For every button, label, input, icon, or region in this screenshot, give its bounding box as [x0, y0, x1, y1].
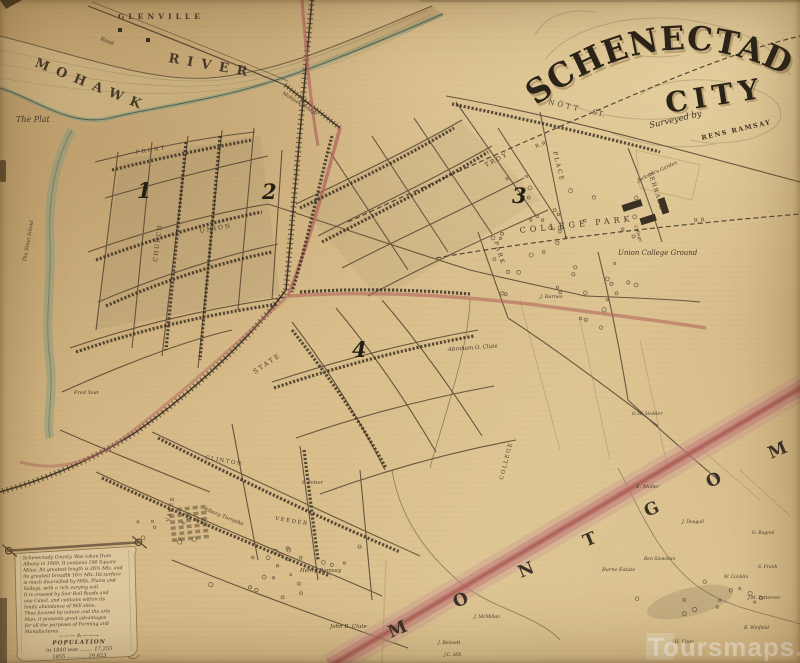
- tree-icon: [255, 588, 258, 591]
- plot-square: [194, 518, 199, 522]
- plot-square: [186, 524, 191, 528]
- map-label: P. Potter: [301, 480, 324, 486]
- tree-icon: [557, 213, 559, 215]
- tree-icon: [634, 283, 638, 287]
- binnekill-channel-teal: [48, 130, 72, 438]
- tree-icon: [602, 308, 606, 312]
- map-label: The Stout Island: [22, 220, 35, 262]
- map-label: E. Moller: [635, 484, 660, 490]
- plot-square: [180, 537, 185, 541]
- plot-square: [185, 512, 190, 516]
- county-boundary-letter: T: [580, 527, 601, 551]
- map-label: G. Bagnol: [752, 530, 775, 536]
- map-label: Road: [98, 36, 115, 47]
- plot-square: [177, 513, 182, 517]
- map-label: J. McMillan: [473, 614, 500, 620]
- tree-icon: [621, 228, 624, 231]
- map-label: Abraham O. Clute: [447, 343, 499, 353]
- tree-icon: [298, 582, 301, 585]
- tree-icon: [209, 582, 213, 586]
- tree-icon: [583, 291, 587, 295]
- tree-icon: [299, 556, 302, 559]
- tree-icon: [599, 326, 602, 329]
- plot-square: [187, 530, 192, 534]
- tree-icon: [266, 556, 270, 560]
- watermark-link[interactable]: Toursmaps.com: [648, 632, 800, 663]
- marsh-shading: [644, 578, 736, 626]
- tree-icon: [528, 186, 532, 190]
- map-label: Union College Ground: [618, 249, 698, 257]
- tree-icon: [614, 262, 616, 264]
- population-row: 1855 ............ 29,623: [52, 653, 107, 660]
- surveyor-name: RENS RAMSAY: [701, 118, 772, 142]
- plot-square: [204, 535, 209, 539]
- tree-icon: [262, 575, 266, 579]
- tree-icon: [530, 219, 532, 221]
- map-label: J. Bennett: [437, 640, 461, 646]
- tree-icon: [635, 196, 639, 200]
- map-label: Ben Slowman: [643, 556, 675, 562]
- county-boundary-letter: O: [703, 468, 726, 493]
- map-label: Burne Estate: [601, 567, 635, 573]
- plot-square: [196, 535, 201, 539]
- map-label: The Plat: [16, 115, 50, 124]
- district-number: 3: [512, 183, 527, 208]
- tree-icon: [491, 236, 495, 240]
- map-label: J. Barnes: [539, 294, 563, 300]
- map-label: PARK: [492, 240, 506, 266]
- plot-square: [186, 518, 191, 522]
- map-label: STATE: [252, 351, 283, 375]
- tree-icon: [343, 562, 345, 564]
- map-label: J.C. Hill: [443, 652, 462, 658]
- map-label: YATES: [166, 496, 177, 523]
- plot-square: [172, 538, 177, 542]
- map-label: John B. Clute: [329, 624, 368, 630]
- tree-icon: [569, 189, 573, 193]
- map-label: RIVER: [167, 51, 256, 81]
- plot-square: [179, 525, 184, 529]
- map-label: COLLEGE: [499, 441, 514, 480]
- southwest-red-road: [20, 296, 288, 466]
- tree-icon: [739, 587, 741, 589]
- tree-icon: [579, 317, 582, 320]
- tree-icon: [556, 241, 560, 245]
- map-label: G.W. Vedder: [632, 411, 663, 417]
- tree-icon: [748, 591, 752, 595]
- glenville-building: [118, 28, 122, 32]
- map-label: W. Conklin: [724, 574, 748, 580]
- tree-icon: [281, 596, 284, 599]
- tree-icon: [615, 292, 618, 295]
- legend-scroll: Schenectady County. Was taken fromAlbany…: [2, 536, 149, 662]
- tree-icon: [151, 520, 153, 522]
- map-canvas: GLENVILLEMOHAWKRIVERThe PlatRoadMohawk B…: [0, 0, 800, 663]
- tree-icon: [276, 565, 278, 567]
- tree-icon: [553, 209, 556, 212]
- plot-square: [202, 523, 207, 527]
- plot-square: [178, 519, 183, 523]
- map-label: J.M. Patterson: [747, 595, 780, 601]
- tree-icon: [322, 561, 326, 565]
- map-label: S. Frank: [758, 564, 778, 570]
- map-label: VEEDER: [274, 516, 309, 527]
- tree-icon: [504, 293, 507, 296]
- tree-icon: [584, 318, 587, 321]
- tree-icon: [606, 277, 610, 281]
- tree-icon: [635, 597, 639, 601]
- district-number: 1: [137, 178, 152, 203]
- tree-icon: [574, 266, 577, 269]
- tree-icon: [632, 235, 635, 238]
- tree-icon: [541, 219, 544, 222]
- legend-text-line: Manufactures.: [24, 628, 60, 635]
- glenville-building: [146, 38, 150, 42]
- plot-square: [177, 507, 182, 511]
- plot-square: [185, 506, 190, 510]
- tree-icon: [300, 592, 303, 595]
- tree-icon: [501, 232, 504, 235]
- tree-icon: [252, 556, 255, 559]
- tree-icon: [572, 273, 575, 276]
- district-number: 4: [352, 337, 367, 362]
- plot-square: [179, 531, 184, 535]
- plot-square: [193, 512, 198, 516]
- map-label: J. Dougall: [681, 519, 705, 525]
- population-rows: in 1840 was ........ 17,2551855 ........…: [46, 646, 113, 661]
- district-number: 2: [261, 179, 277, 204]
- tree-icon: [249, 586, 252, 589]
- tree-icon: [592, 196, 595, 199]
- map-label: B. Winfield: [743, 625, 769, 631]
- plot-square: [194, 524, 199, 528]
- map-page: GLENVILLEMOHAWKRIVERThe PlatRoadMohawk B…: [0, 0, 800, 663]
- map-label: R. R.: [535, 140, 549, 150]
- tree-icon: [358, 545, 361, 548]
- county-boundary-letter: G: [641, 497, 664, 522]
- plot-square: [193, 506, 198, 510]
- map-label: R. R.: [694, 217, 707, 224]
- tree-icon: [526, 176, 528, 178]
- plot-square: [188, 536, 193, 540]
- plot-square: [202, 517, 207, 521]
- tree-icon: [517, 270, 521, 274]
- tree-icon: [627, 281, 630, 284]
- plot-square: [171, 526, 176, 530]
- tree-icon: [556, 286, 558, 288]
- tree-icon: [290, 574, 292, 576]
- tree-icon: [610, 282, 613, 285]
- tree-icon: [154, 526, 156, 528]
- tree-icon: [493, 258, 496, 261]
- tree-icon: [506, 270, 509, 273]
- map-label: Fred Yout: [73, 390, 100, 396]
- tree-icon: [499, 237, 501, 239]
- tree-icon: [141, 536, 145, 540]
- county-boundary-letter: M: [765, 437, 792, 464]
- map-label: College: [632, 225, 644, 244]
- tree-icon: [272, 577, 274, 579]
- tree-icon: [703, 580, 707, 584]
- tree-icon: [606, 299, 608, 301]
- map-label: GLENVILLE: [118, 12, 204, 21]
- plot-square: [171, 532, 176, 536]
- tree-icon: [501, 292, 504, 295]
- plot-square: [203, 529, 208, 533]
- tree-icon: [137, 521, 139, 523]
- watermark-text: Toursmaps.com: [648, 632, 800, 662]
- tree-icon: [529, 253, 533, 257]
- map-label: Henry Ramsay: [299, 568, 342, 574]
- tree-icon: [754, 601, 756, 603]
- plot-square: [195, 530, 200, 534]
- tree-icon: [330, 563, 333, 566]
- tree-icon: [542, 251, 545, 254]
